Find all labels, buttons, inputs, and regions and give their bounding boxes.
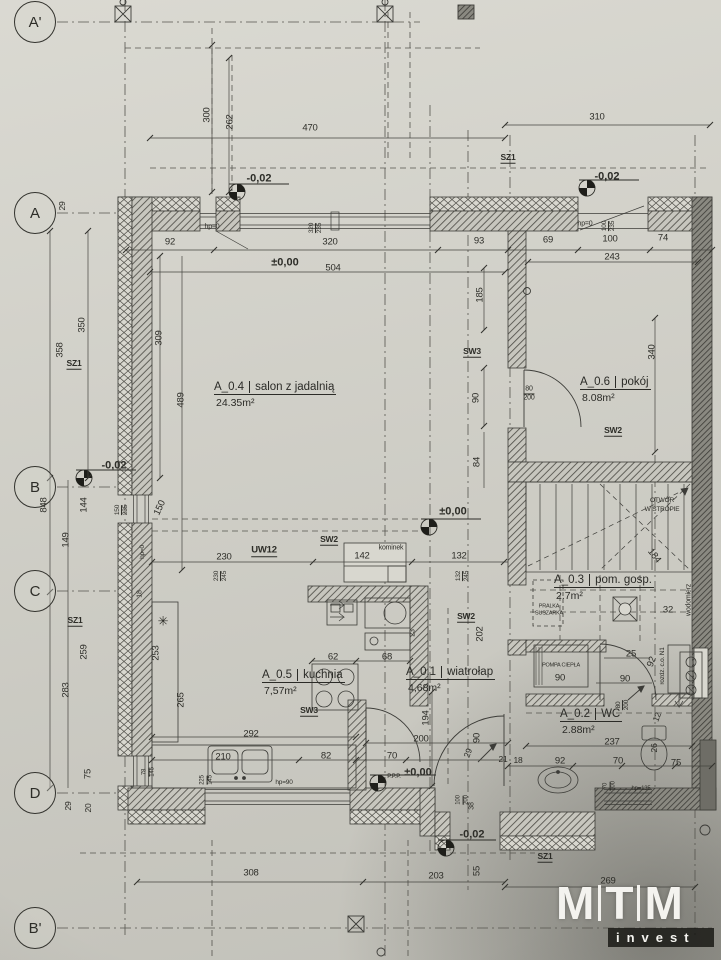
- room-heading: A_0.3pom. gosp.: [554, 574, 654, 588]
- dimension-label: 21: [498, 755, 507, 764]
- room-heading: A_0.4salon z jadalnią: [214, 381, 336, 395]
- floorplan-sheet: A'ABCDB' A_0.4salon z jadalnią24.35m²A_0…: [0, 0, 721, 960]
- fraction-top: 70: [603, 783, 610, 789]
- dimension-label: 100: [602, 234, 617, 244]
- dimension-label: 340: [647, 344, 657, 359]
- fraction-top: 100: [456, 795, 463, 804]
- dimension-label: POMPA CIEPŁA: [542, 663, 580, 669]
- dimension-label: 69: [543, 235, 553, 245]
- elevation-label: ±0,00: [271, 258, 298, 269]
- room-label: A_0.4salon z jadalnią24.35m²: [214, 381, 336, 409]
- dimension-label: 310: [589, 112, 604, 122]
- fraction-top: 78: [142, 769, 149, 775]
- room-label: A_0.3pom. gosp.2.7m²: [554, 574, 654, 602]
- room-heading: A_0.6pokój: [580, 376, 651, 390]
- dimension-label: SUSZARKA: [535, 611, 563, 617]
- fraction-top: 100: [601, 221, 608, 231]
- symbol-mark: ✳: [158, 615, 169, 628]
- fraction-top: 230: [213, 571, 220, 581]
- fraction-bottom: 235: [609, 221, 617, 231]
- dimension-label: hp=0: [205, 224, 220, 231]
- fraction-top: 80: [615, 702, 622, 709]
- dimension-label: 142: [354, 551, 369, 561]
- dimension-label: 90: [555, 673, 565, 683]
- room-name: salon z jadalnią: [250, 381, 334, 393]
- fraction-top: 80: [525, 385, 532, 393]
- dimension-label: 92: [165, 237, 175, 247]
- dimension-label: 358: [55, 342, 65, 357]
- fraction-bottom: 145: [207, 775, 215, 784]
- dimension-label: 309: [154, 330, 164, 345]
- dimension-label: W STROPIE: [645, 507, 680, 514]
- dimension-label: 149: [61, 532, 71, 547]
- dimension-label: 150235: [114, 505, 130, 515]
- dimension-label: 32: [663, 605, 673, 615]
- room-label: A_0.5kuchnia7,57m²: [262, 669, 345, 697]
- elevation-label: -0,02: [101, 461, 126, 472]
- dimension-label: 243: [604, 252, 619, 262]
- dimension-label: 225145: [200, 775, 215, 784]
- dimension-label: 55: [472, 866, 482, 876]
- dimension-label: 230245: [213, 571, 229, 581]
- fraction-bottom: 200: [523, 394, 534, 403]
- dimension-label: 18: [137, 590, 144, 597]
- room-area: 4,68m²: [406, 680, 495, 694]
- stairs: [526, 482, 692, 572]
- wall-type-tag: UW12: [251, 545, 277, 557]
- dimension-label: 90: [620, 674, 630, 684]
- room-heading: A_0.1wiatrołap: [406, 666, 495, 680]
- dimension-label: 70: [613, 756, 623, 766]
- fraction-bottom: 200: [463, 795, 471, 804]
- dimension-label: 62: [328, 652, 338, 662]
- fraction-bottom: 245: [463, 571, 471, 581]
- logo-letters: M T M: [556, 880, 714, 926]
- logo-divider-bar: [637, 885, 640, 921]
- dimension-label: 185: [475, 287, 485, 302]
- mtm-invest-logo: M T M invest: [556, 880, 714, 947]
- wall-type-tag: SZ1: [68, 616, 83, 627]
- room-area: 24.35m²: [214, 395, 336, 409]
- room-heading: A_0.5kuchnia: [262, 669, 345, 683]
- room-heading: A_0.2WC: [560, 708, 622, 722]
- wall-type-tag: SW3: [463, 347, 481, 358]
- dimension-label: 300: [202, 107, 212, 122]
- elevation-label: ±0,00: [404, 768, 431, 779]
- room-label: A_0.6pokój8.08m²: [580, 376, 651, 404]
- room-name: pokój: [616, 376, 649, 388]
- wall-type-tag: SW3: [300, 706, 318, 717]
- dimension-label: 90: [472, 733, 482, 743]
- logo-letter: M: [644, 880, 682, 926]
- fraction-top: 320: [308, 223, 315, 233]
- dimension-label: 100200: [456, 795, 471, 804]
- dimension-label: 292: [243, 729, 258, 739]
- room-name: pom. gosp.: [590, 574, 652, 586]
- dimension-label: 92: [555, 756, 565, 766]
- dimension-label: 132245: [455, 571, 471, 581]
- dimension-label: 80200: [523, 385, 534, 402]
- fraction-top: 225: [200, 775, 207, 784]
- wall-type-tag: SW2: [604, 426, 622, 437]
- wall-type-tag: SZ1: [67, 359, 82, 370]
- dimension-label: 26: [650, 743, 659, 752]
- dimension-label: 253: [151, 645, 161, 660]
- dimension-label: P.P.P.: [387, 774, 401, 780]
- dimension-label: 68: [382, 652, 392, 662]
- dimension-label: 82: [321, 751, 331, 761]
- axis-bubble-B: B: [14, 466, 56, 508]
- dimension-label: 320235: [308, 223, 324, 233]
- room-id: A_0.2: [560, 708, 596, 720]
- wall-type-tag: SZ1: [538, 852, 553, 863]
- wall-type-tag: SZ1: [501, 153, 516, 164]
- floorplan-drawing: [0, 0, 721, 960]
- dimension-label: 25: [626, 649, 636, 659]
- axis-bubble-A: A: [14, 192, 56, 234]
- axis-bubble-D: D: [14, 772, 56, 814]
- wall-type-tag: SW2: [320, 535, 338, 546]
- fraction-bottom: 235: [316, 223, 324, 233]
- dimension-label: 848: [39, 497, 49, 512]
- dimension-label: 230: [216, 552, 231, 562]
- dimension-label: 100235: [601, 221, 617, 231]
- dimension-label: 283: [61, 682, 71, 697]
- dimension-label: hp=0: [140, 545, 147, 559]
- elevation-label: ±0,00: [439, 507, 466, 518]
- dimension-label: 70100: [603, 781, 618, 790]
- dimension-label: 29: [58, 201, 67, 210]
- dimension-label: 489: [176, 392, 186, 407]
- room-area: 2.88m²: [560, 722, 622, 736]
- dimension-label: 84: [472, 457, 482, 467]
- axis-bubble-C: C: [14, 570, 56, 612]
- dimension-label: 320: [322, 237, 337, 247]
- elevation-label: -0,02: [459, 830, 484, 841]
- room-name: wiatrołap: [442, 666, 493, 678]
- dimension-label: 144: [79, 497, 89, 512]
- fraction-bottom: 235: [122, 505, 130, 515]
- room-area: 7,57m²: [262, 683, 345, 697]
- dimension-label: kominek: [379, 545, 404, 552]
- dimension-label: rozdz. c.o. N1: [660, 647, 667, 684]
- dimension-label: 23: [410, 629, 417, 636]
- fraction-bottom: 200: [623, 700, 631, 710]
- room-id: A_0.3: [554, 574, 590, 586]
- room-label: A_0.2WC2.88m²: [560, 708, 622, 736]
- dimension-label: hp=90: [275, 780, 292, 787]
- dimension-label: 132: [451, 551, 466, 561]
- dimension-label: 210: [215, 752, 230, 762]
- dimension-label: 93: [474, 236, 484, 246]
- fraction-bottom: 100: [610, 781, 618, 790]
- dimension-label: 470: [302, 123, 317, 133]
- dimension-label: wodomierz: [686, 584, 693, 616]
- elevation-label: -0,02: [246, 174, 271, 185]
- dimension-label: PRALKA: [539, 604, 560, 610]
- dimension-label: 20: [84, 803, 93, 812]
- dimension-label: 78145: [142, 767, 157, 776]
- fraction-bottom: 145: [149, 767, 157, 776]
- dimension-label: 350: [77, 317, 87, 332]
- dimension-label: 259: [79, 644, 89, 659]
- room-id: A_0.1: [406, 666, 442, 678]
- dimension-label: OTWÓR: [650, 498, 674, 505]
- dimension-label: 194: [421, 710, 431, 725]
- room-id: A_0.4: [214, 381, 250, 393]
- room-label: A_0.1wiatrołap4,68m²: [406, 666, 495, 694]
- dimension-label: 29: [64, 801, 73, 810]
- dimension-label: 504: [325, 263, 340, 273]
- dimension-label: hp=135: [632, 786, 651, 792]
- logo-letter: M: [556, 880, 594, 926]
- dimension-label: 202: [475, 626, 485, 641]
- room-name: kuchnia: [298, 669, 343, 681]
- dimension-label: 70: [387, 751, 397, 761]
- dimension-label: 265: [176, 692, 186, 707]
- dimension-label: 90: [471, 393, 481, 403]
- room-area: 2.7m²: [554, 588, 654, 602]
- axis-bubble-Bp: B': [14, 907, 56, 949]
- dimension-label: 18: [513, 756, 522, 765]
- dimension-label: 237: [604, 737, 619, 747]
- fraction-bottom: 245: [221, 571, 229, 581]
- dimension-label: 262: [225, 114, 235, 129]
- fraction-top: 150: [114, 505, 121, 515]
- dimension-label: 200: [413, 734, 428, 744]
- logo-letter: T: [605, 880, 633, 926]
- room-id: A_0.6: [580, 376, 616, 388]
- room-area: 8.08m²: [580, 390, 651, 404]
- dimension-label: 308: [243, 868, 258, 878]
- dimension-label: 74: [658, 233, 668, 243]
- dimension-label: hp=0: [578, 221, 593, 228]
- room-id: A_0.5: [262, 669, 298, 681]
- logo-subtitle: invest: [608, 928, 714, 947]
- dimension-label: 80200: [615, 700, 631, 710]
- fraction-top: 132: [455, 571, 462, 581]
- axis-bubble-Ap: A': [14, 1, 56, 43]
- dimension-label: 203: [428, 871, 443, 881]
- logo-divider-bar: [598, 885, 601, 921]
- dimension-label: 75: [671, 758, 681, 768]
- dimension-label: 75: [83, 769, 93, 779]
- wall-type-tag: SW2: [457, 612, 475, 623]
- elevation-label: -0,02: [594, 172, 619, 183]
